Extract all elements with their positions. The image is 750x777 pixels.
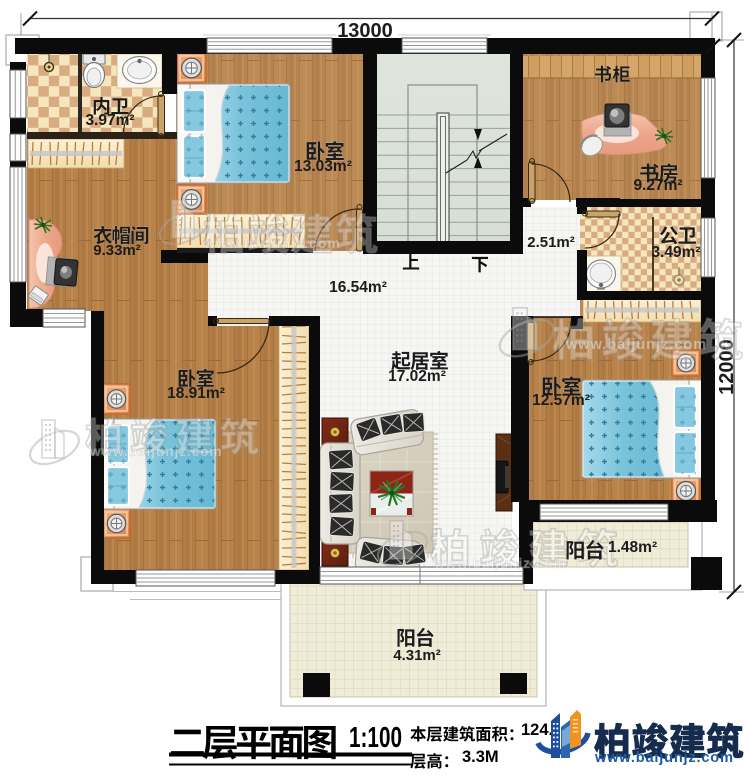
svg-text:124.: 124. xyxy=(521,721,553,739)
svg-text:www.baijunjz.com: www.baijunjz.com xyxy=(565,337,707,353)
svg-text:www.baijunjz.com: www.baijunjz.com xyxy=(594,750,734,766)
svg-text:12.57m²: 12.57m² xyxy=(532,392,590,409)
svg-text:www.baijunjz.com: www.baijunjz.com xyxy=(433,556,567,571)
svg-text:13000: 13000 xyxy=(337,20,393,42)
svg-text:3.97m²: 3.97m² xyxy=(85,112,134,129)
svg-text:www.baijunjz.com: www.baijunjz.com xyxy=(203,235,341,251)
svg-text:13.03m²: 13.03m² xyxy=(294,158,352,175)
svg-text:www.baijunjz.com: www.baijunjz.com xyxy=(89,444,223,459)
svg-text:17.02m²: 17.02m² xyxy=(388,368,446,385)
svg-text:3.49m²: 3.49m² xyxy=(651,244,700,261)
svg-text:1:100: 1:100 xyxy=(349,722,402,754)
svg-text:9.27m²: 9.27m² xyxy=(633,177,682,194)
svg-text:9.33m²: 9.33m² xyxy=(93,242,141,259)
svg-text:3.3M: 3.3M xyxy=(462,748,499,766)
svg-text:18.91m²: 18.91m² xyxy=(167,385,225,402)
svg-text:1.48m²: 1.48m² xyxy=(608,539,657,556)
svg-text:2.51m²: 2.51m² xyxy=(527,234,575,251)
svg-text:16.54m²: 16.54m² xyxy=(329,279,387,296)
svg-text:4.31m²: 4.31m² xyxy=(393,647,441,664)
